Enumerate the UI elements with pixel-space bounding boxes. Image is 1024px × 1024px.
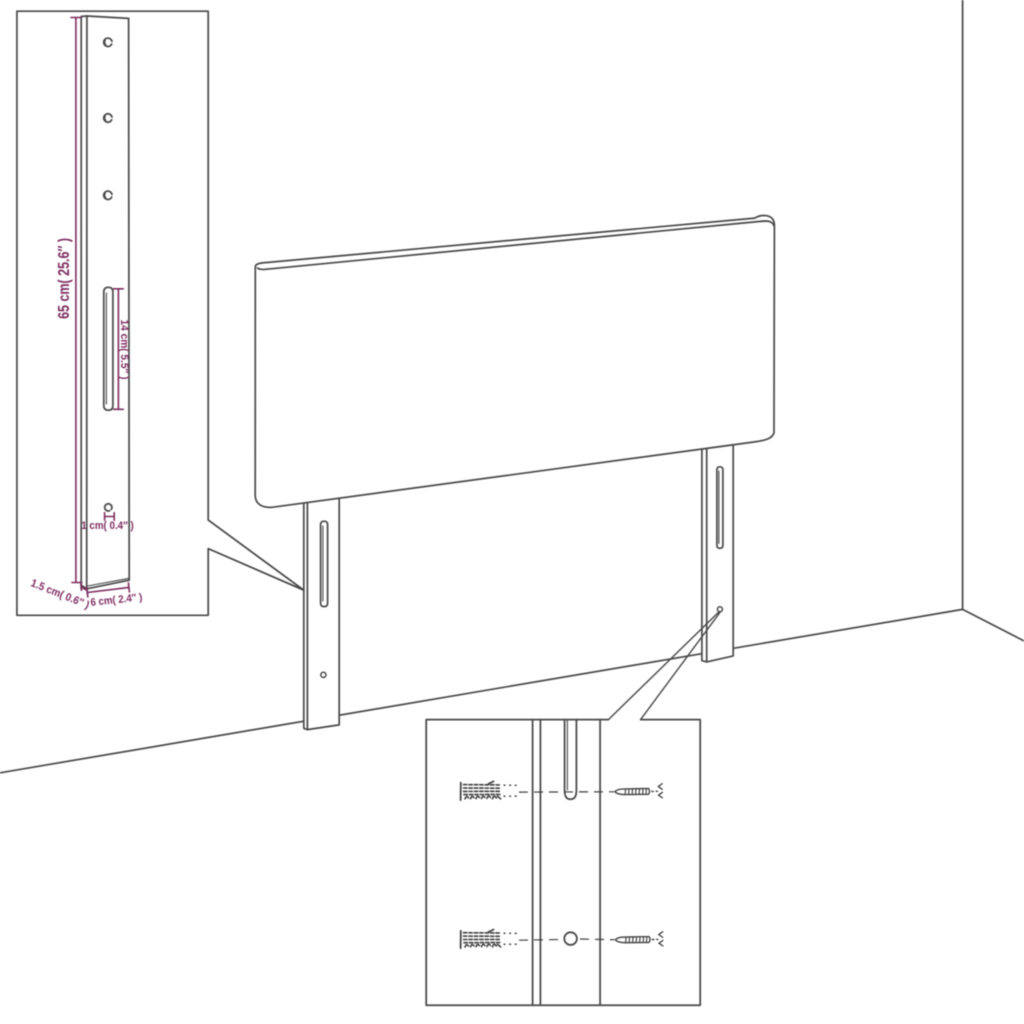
svg-text:14 cm( 5.5″ ): 14 cm( 5.5″ ) <box>118 320 130 380</box>
svg-text:6 cm( 2.4″ ): 6 cm( 2.4″ ) <box>90 591 143 608</box>
svg-text:1 cm( 0.4″ ): 1 cm( 0.4″ ) <box>81 520 134 532</box>
svg-text:65 cm( 25.6″ ): 65 cm( 25.6″ ) <box>56 238 73 319</box>
